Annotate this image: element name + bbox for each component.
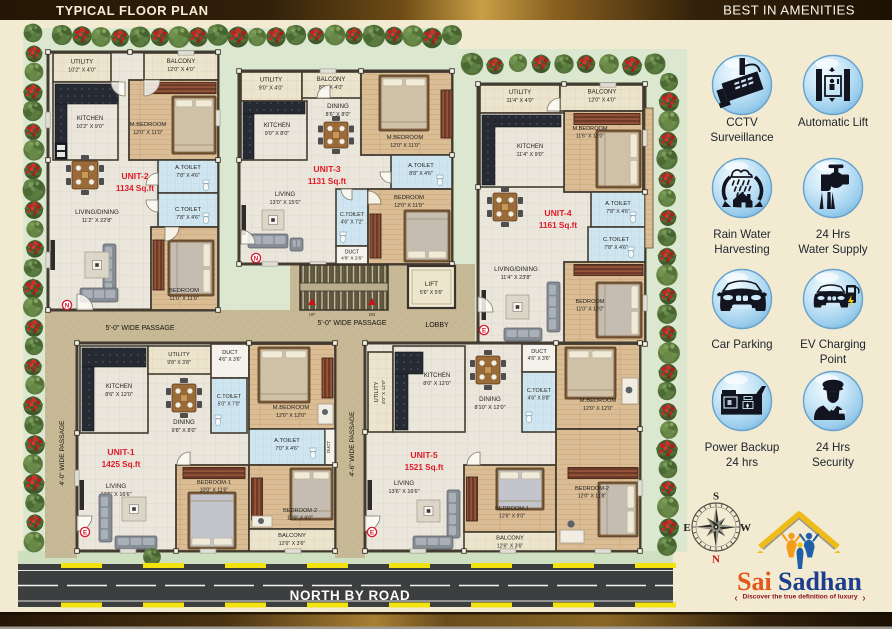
svg-text:12'0" X 12'0": 12'0" X 12'0": [583, 406, 613, 412]
svg-text:UNIT-5: UNIT-5: [410, 450, 437, 460]
svg-text:5'-0" WIDE PASSAGE: 5'-0" WIDE PASSAGE: [105, 325, 174, 332]
svg-text:S: S: [713, 491, 719, 503]
svg-text:1161 Sq.ft: 1161 Sq.ft: [539, 221, 577, 230]
svg-text:BALCONY: BALCONY: [317, 77, 346, 83]
svg-text:12'6" X 3'6": 12'6" X 3'6": [279, 541, 306, 547]
svg-text:5'-0" WIDE PASSAGE: 5'-0" WIDE PASSAGE: [317, 320, 386, 327]
svg-text:N: N: [65, 302, 70, 309]
svg-text:BALCONY: BALCONY: [167, 59, 196, 65]
svg-text:4'-6" WIDE PASSAGE: 4'-6" WIDE PASSAGE: [349, 411, 356, 477]
svg-text:12'0" X 11'0": 12'0" X 11'0": [394, 203, 424, 209]
svg-text:LIVING/DINING: LIVING/DINING: [494, 266, 538, 273]
svg-text:9'0" X 8'0": 9'0" X 8'0": [265, 131, 290, 137]
svg-text:7'0" X 4'6": 7'0" X 4'6": [275, 446, 299, 452]
svg-text:Water Supply: Water Supply: [798, 243, 867, 256]
svg-text:DINING: DINING: [327, 103, 349, 110]
svg-text:13'6" X 16'6": 13'6" X 16'6": [388, 489, 419, 495]
svg-text:DINING: DINING: [479, 396, 501, 403]
svg-text:12'6" X 9'0": 12'6" X 9'0": [499, 514, 525, 520]
svg-text:8'6" X 12'0": 8'6" X 12'0": [105, 392, 133, 398]
svg-text:7'8" X 4'6": 7'8" X 4'6": [176, 173, 200, 179]
svg-text:C.TOILET: C.TOILET: [527, 388, 552, 394]
svg-text:C.TOILET: C.TOILET: [175, 207, 201, 213]
svg-text:1521 Sq.ft: 1521 Sq.ft: [405, 463, 444, 472]
svg-text:8'8" X 4'6": 8'8" X 4'6": [409, 171, 433, 177]
svg-text:UTILITY: UTILITY: [168, 352, 190, 358]
svg-text:DUCT: DUCT: [345, 250, 360, 256]
svg-text:DN: DN: [369, 312, 376, 317]
svg-text:4'6" X 7'2": 4'6" X 7'2": [341, 220, 364, 226]
svg-text:A.TOILET: A.TOILET: [605, 201, 631, 207]
svg-text:TYPICAL FLOOR PLAN: TYPICAL FLOOR PLAN: [56, 3, 208, 18]
svg-text:4'0" X 12'0": 4'0" X 12'0": [381, 379, 387, 404]
svg-text:M.BEDROOM: M.BEDROOM: [273, 405, 310, 411]
svg-text:E: E: [482, 327, 487, 334]
svg-text:7'8" X 4'6": 7'8" X 4'6": [176, 215, 200, 221]
svg-text:11'6" X 12'0": 11'6" X 12'0": [576, 134, 605, 140]
svg-text:12'0" X 12'0": 12'0" X 12'0": [276, 413, 306, 419]
svg-text:UTILITY: UTILITY: [509, 90, 531, 96]
svg-text:11'4" X 4'0": 11'4" X 4'0": [506, 98, 533, 104]
svg-text:12'0" X 4'0": 12'0" X 4'0": [588, 98, 616, 104]
svg-text:7'8" X 4'6": 7'8" X 4'6": [604, 245, 628, 251]
svg-text:UTILITY: UTILITY: [374, 381, 380, 402]
svg-text:C.TOILET: C.TOILET: [603, 237, 629, 243]
svg-text:5'6" X 5'6": 5'6" X 5'6": [420, 290, 444, 296]
svg-text:C.TOILET: C.TOILET: [340, 212, 365, 218]
svg-text:24 hrs: 24 hrs: [726, 456, 758, 469]
svg-text:Security: Security: [812, 456, 854, 469]
svg-text:11'4" X 23'8": 11'4" X 23'8": [501, 275, 532, 281]
svg-text:9'8" X 8'0": 9'8" X 8'0": [172, 428, 197, 434]
svg-text:BEDROOM-2: BEDROOM-2: [283, 508, 317, 514]
svg-text:LIVING: LIVING: [106, 483, 126, 490]
svg-text:5'0" X 7'0": 5'0" X 7'0": [218, 402, 241, 408]
svg-text:4'6" X 3'6": 4'6" X 3'6": [528, 356, 551, 362]
svg-text:E: E: [370, 529, 375, 536]
svg-text:BEDROOM: BEDROOM: [394, 195, 424, 201]
svg-text:UP: UP: [309, 312, 315, 317]
svg-text:12'0" X 4'0": 12'0" X 4'0": [167, 67, 195, 73]
svg-text:10'0" X 11'6": 10'0" X 11'6": [200, 488, 229, 494]
svg-text:12'0" X 9'0": 12'0" X 9'0": [287, 516, 313, 522]
svg-text:BALCONY: BALCONY: [278, 533, 306, 539]
svg-text:BALCONY: BALCONY: [496, 536, 524, 542]
svg-text:C.TOILET: C.TOILET: [217, 394, 242, 400]
svg-text:M.BEDROOM: M.BEDROOM: [580, 398, 617, 404]
svg-text:UTILITY: UTILITY: [260, 78, 282, 84]
svg-text:7'8" X 4'6": 7'8" X 4'6": [606, 209, 630, 215]
svg-text:N: N: [254, 255, 259, 262]
svg-text:E: E: [683, 522, 690, 534]
svg-text:EV Charging: EV Charging: [800, 338, 866, 351]
svg-text:LIVING: LIVING: [275, 191, 295, 198]
svg-text:W: W: [740, 522, 751, 534]
svg-text:M.BEDROOM: M.BEDROOM: [130, 122, 167, 128]
svg-text:8'0" X 12'0": 8'0" X 12'0": [423, 381, 451, 387]
svg-text:M.BEDROOM: M.BEDROOM: [572, 126, 607, 132]
svg-text:11'0" X 11'0": 11'0" X 11'0": [169, 296, 198, 302]
svg-text:CCTV: CCTV: [726, 116, 758, 129]
svg-text:Point: Point: [820, 353, 847, 366]
svg-text:UNIT-4: UNIT-4: [544, 208, 571, 218]
svg-text:11'2" X 22'8": 11'2" X 22'8": [82, 218, 113, 224]
svg-text:UNIT-1: UNIT-1: [107, 447, 134, 457]
svg-text:4'6" X 3'6": 4'6" X 3'6": [219, 357, 242, 363]
svg-text:NORTH BY ROAD: NORTH BY ROAD: [290, 588, 411, 603]
svg-text:Discover the true definition o: Discover the true definition of luxury: [742, 594, 857, 601]
svg-text:BEDROOM-1: BEDROOM-1: [495, 506, 529, 512]
svg-text:Sadhan: Sadhan: [778, 567, 862, 596]
svg-text:DINING: DINING: [173, 419, 195, 426]
svg-text:DUCT: DUCT: [222, 350, 238, 356]
svg-text:4'6" X 8'8": 4'6" X 8'8": [528, 396, 551, 402]
svg-text:N: N: [712, 554, 720, 566]
svg-text:KITCHEN: KITCHEN: [424, 373, 450, 379]
svg-text:LIVING: LIVING: [394, 480, 414, 487]
svg-text:Power Backup: Power Backup: [705, 441, 780, 454]
svg-text:KITCHEN: KITCHEN: [264, 123, 290, 129]
svg-text:KITCHEN: KITCHEN: [517, 144, 543, 150]
svg-text:24 Hrs: 24 Hrs: [816, 441, 850, 454]
svg-text:12'0" X 11'8": 12'0" X 11'8": [578, 494, 607, 500]
svg-text:DUCT: DUCT: [326, 441, 331, 453]
svg-text:4'6" X 2'6": 4'6" X 2'6": [341, 256, 363, 262]
svg-text:LIVING/DINING: LIVING/DINING: [75, 209, 119, 216]
svg-text:8'10" X 12'0": 8'10" X 12'0": [474, 405, 505, 411]
svg-text:10'2" X 4'0": 10'2" X 4'0": [68, 68, 96, 74]
svg-text:11'4" X 9'0": 11'4" X 9'0": [516, 152, 543, 158]
svg-text:DUCT: DUCT: [531, 349, 547, 355]
svg-text:Rain Water: Rain Water: [713, 228, 771, 241]
svg-text:Surveillance: Surveillance: [710, 131, 773, 144]
svg-text:BEDROOM-2: BEDROOM-2: [575, 486, 609, 492]
svg-text:BALCONY: BALCONY: [588, 90, 617, 96]
svg-text:KITCHEN: KITCHEN: [106, 384, 132, 390]
svg-text:M.BEDROOM: M.BEDROOM: [387, 135, 424, 141]
svg-text:9'8" X 3'8": 9'8" X 3'8": [167, 360, 191, 366]
svg-text:9'0" X 4'0": 9'0" X 4'0": [259, 86, 284, 92]
svg-text:Car Parking: Car Parking: [711, 338, 772, 351]
svg-text:A.TOILET: A.TOILET: [408, 163, 434, 169]
svg-text:BEST IN AMENITIES: BEST IN AMENITIES: [723, 3, 855, 18]
svg-text:12'6" X 3'6": 12'6" X 3'6": [497, 543, 524, 549]
svg-text:1131 Sq.ft: 1131 Sq.ft: [308, 177, 346, 186]
svg-text:UNIT-3: UNIT-3: [313, 164, 340, 174]
svg-text:BEDROOM: BEDROOM: [169, 288, 199, 294]
svg-text:24 Hrs: 24 Hrs: [816, 228, 850, 241]
svg-text:KITCHEN: KITCHEN: [77, 116, 103, 122]
svg-text:1425 Sq.ft: 1425 Sq.ft: [102, 460, 141, 469]
svg-text:A.TOILET: A.TOILET: [274, 438, 300, 444]
svg-text:E: E: [83, 529, 88, 536]
svg-text:12'0" X 11'0": 12'0" X 11'0": [133, 130, 163, 136]
svg-text:13'0" X 15'0": 13'0" X 15'0": [269, 200, 300, 206]
svg-text:Automatic Lift: Automatic Lift: [798, 116, 869, 129]
svg-text:BEDROOM: BEDROOM: [576, 299, 605, 305]
svg-text:Sai: Sai: [737, 567, 772, 596]
svg-text:4'-0" WIDE PASSAGE: 4'-0" WIDE PASSAGE: [59, 420, 66, 486]
svg-text:UNIT-2: UNIT-2: [121, 171, 148, 181]
svg-text:11'0" X 11'0": 11'0" X 11'0": [576, 307, 604, 313]
svg-text:A.TOILET: A.TOILET: [175, 165, 201, 171]
svg-text:UTILITY: UTILITY: [71, 60, 93, 66]
svg-text:LOBBY: LOBBY: [425, 322, 449, 329]
svg-text:10'2" X 9'0": 10'2" X 9'0": [76, 124, 104, 130]
svg-text:Harvesting: Harvesting: [714, 243, 769, 256]
svg-text:LIFT: LIFT: [425, 281, 438, 288]
svg-text:BEDROOM-1: BEDROOM-1: [197, 480, 231, 486]
svg-text:12'0" X 11'0": 12'0" X 11'0": [390, 143, 420, 149]
